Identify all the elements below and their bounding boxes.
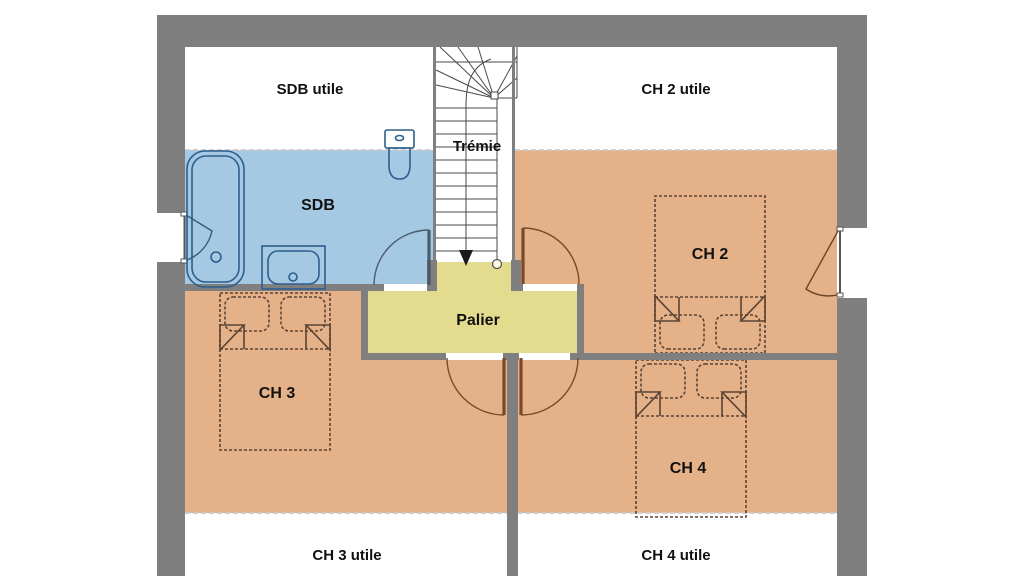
label-sdb-utile: SDB utile [277,81,344,98]
wall-palier-bottom-right [570,353,584,360]
wall-stair-partition-left [433,47,436,264]
label-ch3: CH 3 [259,385,296,402]
wall-palier-left [361,284,368,360]
stair-newel-post [493,260,502,269]
wall-stair-partition-right [512,47,515,264]
floor-plan-viewport: SDB utile CH 2 utile Trémie SDB CH 2 Pal… [0,0,1024,576]
stair-newel-square [491,92,498,99]
label-sdb: SDB [301,197,335,214]
stair-winder-steps [436,47,517,98]
label-tremie: Trémie [453,138,501,155]
label-palier: Palier [456,312,500,329]
wall-left [157,15,185,576]
label-ch4-utile: CH 4 utile [641,547,710,564]
label-ch4: CH 4 [670,460,707,477]
room-ch4-area [518,360,837,513]
label-ch3-utile: CH 3 utile [312,547,381,564]
threshold-ch3 [446,353,503,360]
wall-ch3-ch4-divider [507,353,518,576]
staircase [436,47,517,269]
stair-treads [436,62,517,251]
room-sdb-area [185,150,433,284]
label-ch2-utile: CH 2 utile [641,81,710,98]
threshold-ch4 [519,353,570,360]
wall-palier-top-left-stub [368,284,384,291]
wall-top [157,15,867,47]
threshold-ch2 [523,284,577,291]
wall-stair-stub-right [511,260,521,291]
wall-ch2-ch4 [584,353,837,360]
wall-palier-bottom-left [361,353,446,360]
label-ch2: CH 2 [692,246,729,263]
threshold-sdb [384,284,427,291]
wall-palier-right [577,284,584,360]
floor-plan-drawing: SDB utile CH 2 utile Trémie SDB CH 2 Pal… [0,0,1024,576]
